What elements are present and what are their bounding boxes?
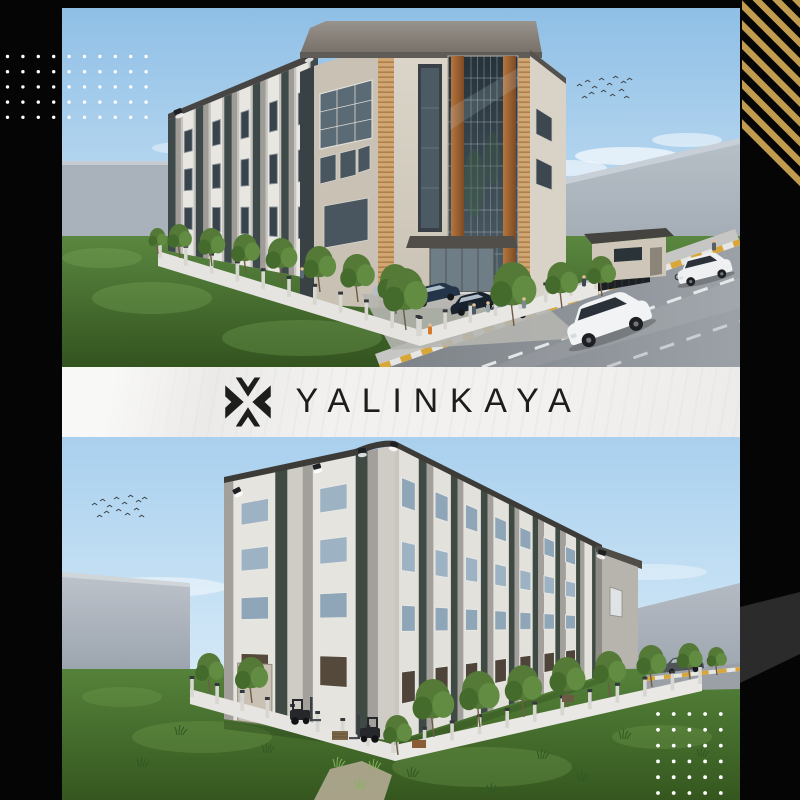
brand-lockup: YALINKAYA: [220, 374, 583, 430]
gold-stripe-ribbon: [742, 0, 800, 187]
poster-frame: YALINKAYA: [0, 0, 800, 800]
gray-wedge-shape: [740, 592, 800, 683]
logo-band: YALINKAYA: [62, 367, 740, 437]
render-top-building-front: [62, 8, 740, 367]
brand-name: YALINKAYA: [296, 382, 583, 421]
render-bottom-building-rear: [62, 437, 740, 800]
yalinkaya-x-chevron-logo-icon: [220, 374, 276, 430]
